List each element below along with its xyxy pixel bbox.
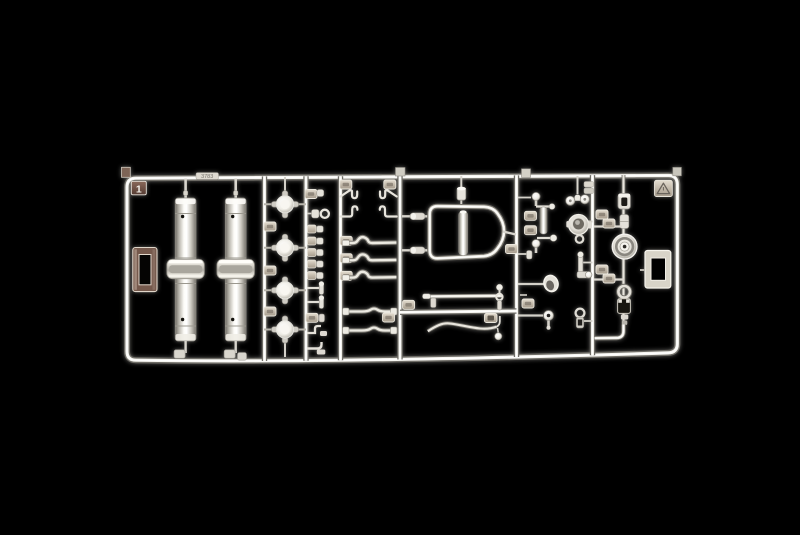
svg-text:3783: 3783	[201, 174, 213, 180]
svg-text:1: 1	[136, 183, 142, 195]
